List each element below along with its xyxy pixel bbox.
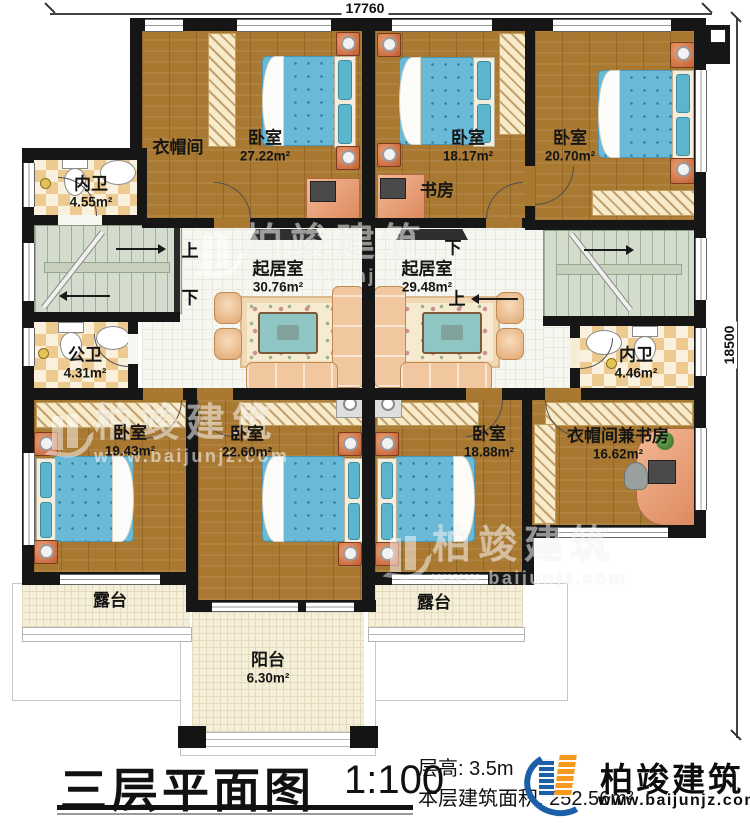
- room-name: 卧室: [451, 128, 485, 148]
- wardrobe: [534, 424, 556, 524]
- dimension-tick: [701, 2, 712, 13]
- window: [695, 238, 707, 300]
- wardrobe: [499, 33, 526, 135]
- room-name: 内卫: [619, 345, 653, 365]
- dimension-line-right: [736, 18, 738, 738]
- armchair: [496, 292, 524, 324]
- room-name: 衣帽间: [153, 138, 204, 158]
- tv: [250, 229, 322, 240]
- nightstand: [34, 540, 58, 564]
- bed-headboard: [672, 70, 694, 160]
- wall: [543, 316, 694, 326]
- room-name: 内卫: [74, 174, 108, 194]
- title-underline: [57, 805, 413, 810]
- bed-headboard: [344, 458, 364, 544]
- door-gap: [197, 388, 233, 400]
- wardrobe: [208, 33, 236, 147]
- nightstand: [338, 542, 362, 566]
- window: [237, 19, 331, 32]
- room-name: 起居室: [402, 259, 453, 279]
- room-label-bathroom-431: 公卫 4.31m²: [64, 345, 107, 380]
- stair-arrow-head: [54, 291, 67, 301]
- floor-height-text: 层高: 3.5m: [418, 752, 514, 781]
- door-gap: [58, 215, 102, 225]
- bed-headboard: [377, 458, 397, 544]
- balcony-post: [178, 726, 206, 748]
- room-label-terrace-right: 露台: [417, 593, 451, 613]
- window: [392, 19, 492, 32]
- nightstand: [670, 42, 696, 68]
- room-label-bedroom-27: 卧室 27.22m²: [240, 128, 290, 163]
- door-gap: [570, 338, 580, 368]
- room-area: 27.22m²: [240, 148, 290, 164]
- window: [306, 602, 354, 612]
- room-name: 书房: [420, 181, 454, 201]
- room-label-bathroom-455: 内卫 4.55m²: [70, 174, 113, 209]
- balcony-post: [350, 726, 378, 748]
- room-label-livingroom-left: 起居室 30.76m²: [253, 259, 304, 294]
- stair-arrow-head: [466, 294, 479, 304]
- nightstand: [34, 432, 58, 456]
- room-area: 22.60m²: [222, 444, 272, 460]
- room-area: 30.76m²: [253, 279, 303, 295]
- room-label-bedroom-1888: 卧室 18.88m²: [464, 424, 514, 459]
- door-gap: [214, 218, 250, 228]
- room-label-bedroom-2260: 卧室 22.60m²: [222, 424, 272, 459]
- wall: [535, 220, 694, 230]
- dimension-right-value: 18500: [721, 322, 737, 369]
- nightstand: [336, 32, 360, 56]
- dimension-tick: [44, 2, 55, 13]
- nightstand: [375, 432, 399, 456]
- stair-label-up-left: 上: [182, 237, 199, 262]
- window: [695, 70, 707, 172]
- room-label-study: 书房: [420, 181, 454, 201]
- stair-label-down-left: 下: [182, 284, 199, 309]
- floorplan-canvas: 17760 18500: [0, 0, 750, 829]
- room-label-balcony: 阳台 6.30m²: [247, 650, 290, 685]
- nightstand: [377, 33, 401, 57]
- stair-arrow-head: [626, 245, 639, 255]
- bed-sheet: [262, 456, 284, 542]
- wall: [174, 228, 180, 312]
- room-name: 卧室: [553, 128, 587, 148]
- room-name: 卧室: [248, 128, 282, 148]
- door-gap: [128, 334, 138, 364]
- computer-monitor: [380, 178, 406, 199]
- room-label-bedroom-2070: 卧室 20.70m²: [545, 128, 595, 163]
- room-area: 4.55m²: [70, 194, 113, 210]
- room-label-bedroom-1943: 卧室 19.43m²: [105, 423, 155, 458]
- room-area: 16.62m²: [593, 446, 643, 462]
- window: [23, 328, 35, 366]
- room-label-terrace-left: 露台: [93, 591, 127, 611]
- room-name: 公卫: [68, 345, 102, 365]
- nightstand: [375, 542, 399, 566]
- room-area: 18.17m²: [443, 148, 493, 164]
- wall-central: [362, 18, 375, 612]
- wall: [22, 312, 180, 322]
- stair-arrow: [62, 295, 110, 297]
- window: [695, 428, 707, 510]
- window: [60, 574, 160, 585]
- armchair: [214, 328, 242, 360]
- wall: [22, 148, 138, 160]
- plan-title: 三层平面图: [60, 752, 315, 821]
- floor-drain: [40, 178, 51, 189]
- wall: [102, 215, 144, 225]
- armchair: [214, 292, 242, 324]
- window: [23, 163, 35, 207]
- room-label-bathroom-446: 内卫 4.46m²: [615, 345, 658, 380]
- window: [553, 19, 671, 32]
- window: [23, 243, 35, 301]
- company-logo-url: www.baijunjz.com: [598, 792, 750, 810]
- window: [558, 527, 668, 538]
- balcony-railing: [192, 732, 366, 747]
- desk-chair: [624, 462, 648, 490]
- bed-headboard: [36, 458, 56, 542]
- room-area: 20.70m²: [545, 148, 595, 164]
- room-area: 4.46m²: [615, 365, 658, 381]
- room-area: 19.43m²: [105, 443, 155, 459]
- door-gap: [525, 166, 535, 206]
- terrace-right-railing: [368, 627, 525, 642]
- room-name: 露台: [417, 593, 451, 613]
- stair-handrail: [556, 264, 682, 275]
- computer-monitor: [648, 460, 676, 484]
- stair-handrail: [44, 262, 170, 273]
- wall: [137, 148, 147, 225]
- nightstand: [336, 146, 360, 170]
- room-name: 衣帽间兼书房: [567, 426, 669, 446]
- bed-sheet: [598, 70, 620, 158]
- room-label-cloakroom: 衣帽间: [153, 138, 204, 158]
- wall-corner-notch: [710, 29, 726, 43]
- room-label-bedroom-1817: 卧室 18.17m²: [443, 128, 493, 163]
- door-gap: [466, 388, 502, 400]
- room-name: 露台: [93, 591, 127, 611]
- window: [695, 328, 707, 376]
- bed-headboard: [334, 56, 356, 148]
- stair-arrow: [116, 248, 160, 250]
- room-name: 卧室: [472, 424, 506, 444]
- door-gap: [486, 218, 522, 228]
- window: [145, 19, 183, 32]
- wall: [22, 215, 58, 225]
- room-label-livingroom-right: 起居室 29.48m²: [402, 259, 453, 294]
- stair-arrow: [474, 298, 518, 300]
- wall: [130, 18, 142, 160]
- nightstand: [338, 432, 362, 456]
- room-name: 阳台: [251, 650, 285, 670]
- dimension-top-value: 17760: [342, 0, 389, 16]
- terrace-left-railing: [22, 627, 192, 642]
- wall: [142, 218, 362, 228]
- stair-arrow-head: [158, 244, 171, 254]
- room-label-cloakroom-study: 衣帽间兼书房 16.62m²: [567, 426, 669, 461]
- nightstand: [670, 158, 696, 184]
- stair-arrow: [584, 249, 628, 251]
- window: [23, 453, 35, 545]
- door-gap: [143, 388, 183, 400]
- title-underline-thin: [57, 813, 413, 815]
- nightstand: [377, 143, 401, 167]
- company-logo-icon: [526, 748, 596, 814]
- room-area: 18.88m²: [464, 444, 514, 460]
- armchair: [496, 328, 524, 360]
- room-area: 29.48m²: [402, 279, 452, 295]
- coffee-table: [422, 312, 482, 354]
- window: [392, 574, 488, 585]
- floor-drain: [38, 348, 49, 359]
- bed-sheet: [399, 57, 421, 145]
- room-area: 6.30m²: [247, 670, 290, 686]
- room-area: 4.31m²: [64, 365, 107, 381]
- room-name: 卧室: [230, 424, 264, 444]
- coffee-table: [258, 312, 318, 354]
- stair-label-down-right: 下: [445, 234, 462, 259]
- wardrobe: [592, 190, 696, 216]
- computer-monitor: [310, 181, 336, 202]
- sliding-door: [212, 602, 298, 612]
- room-name: 起居室: [253, 259, 304, 279]
- logo-swoosh: [517, 744, 600, 823]
- room-name: 卧室: [113, 423, 147, 443]
- wall: [522, 538, 534, 585]
- door-gap: [545, 388, 581, 400]
